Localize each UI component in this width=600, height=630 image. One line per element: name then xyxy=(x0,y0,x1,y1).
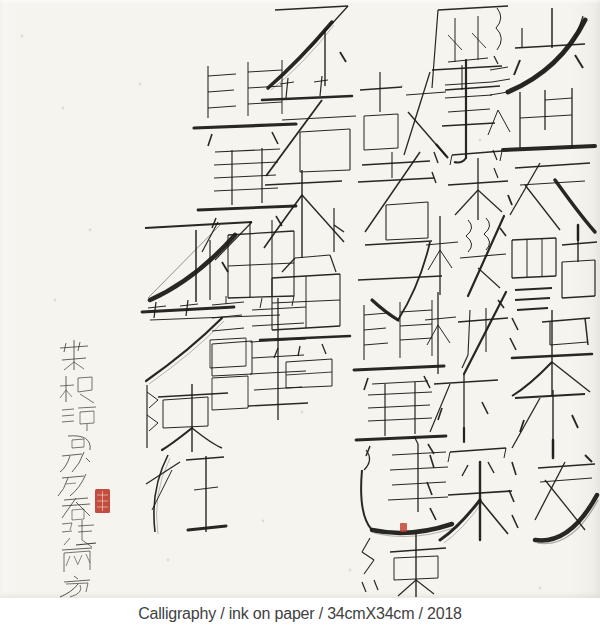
glyph-c3-5: 其 xyxy=(356,381,446,456)
glyph-c2-4: 機 xyxy=(426,216,506,296)
glyph-c1-1: 涉 xyxy=(508,8,585,92)
glyph-c2-5: 械 xyxy=(425,292,508,374)
glyph-c6-1: 不 xyxy=(145,222,252,302)
glyph-c1-3: 淺 xyxy=(508,163,595,232)
signature-column: 菜根譚句戊戌春張兩户菜根譚句戊戌春張兩户 xyxy=(58,340,96,597)
signature-glyph-s3: 譚 xyxy=(62,407,96,431)
artist-seal: artist seal xyxy=(95,489,110,513)
seal-speck xyxy=(400,523,407,532)
glyph-c2-3: 深 xyxy=(432,151,508,220)
signature-glyph-s4: 句 xyxy=(68,436,90,450)
glyph-c2-1: 歷 xyxy=(432,6,508,90)
column-2: 歷事深機械亦深歷事深機械亦深 xyxy=(425,6,512,543)
column-1: 涉世淺點染亦淺涉世淺點染亦淺 xyxy=(503,8,598,544)
glyph-c5-1: 與 xyxy=(194,60,296,146)
glyph-c3-1: 故 xyxy=(360,72,448,158)
glyph-c4-1: 不 xyxy=(268,6,348,90)
signature-glyph-s9: 兩 xyxy=(62,548,92,572)
glyph-c1-6: 亦 xyxy=(512,390,585,458)
artwork-paper: paper speckles涉世淺點染亦淺涉世淺點染亦淺歷事深機械亦深歷事深機械… xyxy=(0,0,600,598)
glyph-c3-4: 與 xyxy=(354,300,444,390)
column-6: 不若陳狂不若陳狂 xyxy=(142,222,280,534)
glyph-c6-3: 陳 xyxy=(147,384,228,452)
glyph-c1-5: 染 xyxy=(510,310,592,396)
artwork-svg: paper speckles涉世淺點染亦淺涉世淺點染亦淺歷事深機械亦深歷事深機械… xyxy=(0,0,600,598)
glyph-c3-2: 君 xyxy=(358,152,434,240)
glyph-c6-4: 狂 xyxy=(146,455,226,534)
glyph-c5-2: 其 xyxy=(198,148,296,228)
signature-glyph-s8: 張 xyxy=(62,520,96,547)
glyph-c4-3: 朴 xyxy=(264,170,344,258)
column-4: 不若朴魯不若朴魯 xyxy=(260,6,356,388)
glyph-c1-2: 世 xyxy=(503,88,595,150)
signature-glyph-s2: 根 xyxy=(60,376,94,403)
glyph-c4-4: 魯 xyxy=(260,255,350,388)
glyph-c2-6: 亦 xyxy=(430,374,498,442)
signature-glyph-s6: 戌 xyxy=(58,474,86,496)
artwork-caption: Calligraphy / ink on paper / 34cmX34cm /… xyxy=(0,598,600,630)
glyph-c5-4: 謹 xyxy=(210,296,308,420)
signature-glyph-s5: 戊 xyxy=(60,452,90,472)
glyph-c2-2: 事 xyxy=(432,60,510,178)
glyph-c1-7: 淺 xyxy=(509,455,598,544)
photo-frame: paper speckles涉世淺點染亦淺涉世淺點染亦淺歷事深機械亦深歷事深機械… xyxy=(0,0,600,630)
column-5: 與其曲謹與其曲謹 xyxy=(194,60,308,420)
glyph-c1-4: 點 xyxy=(512,225,597,310)
signature-glyph-s10: 户 xyxy=(60,576,90,597)
glyph-c3-6: 達 xyxy=(361,436,454,537)
glyph-c3-7: 練 xyxy=(362,532,446,597)
signature-glyph-s1: 菜 xyxy=(60,340,88,370)
signature-glyph-s7: 春 xyxy=(62,498,90,520)
column-3: 故君子與其達練故君子與其達練 xyxy=(354,72,454,597)
